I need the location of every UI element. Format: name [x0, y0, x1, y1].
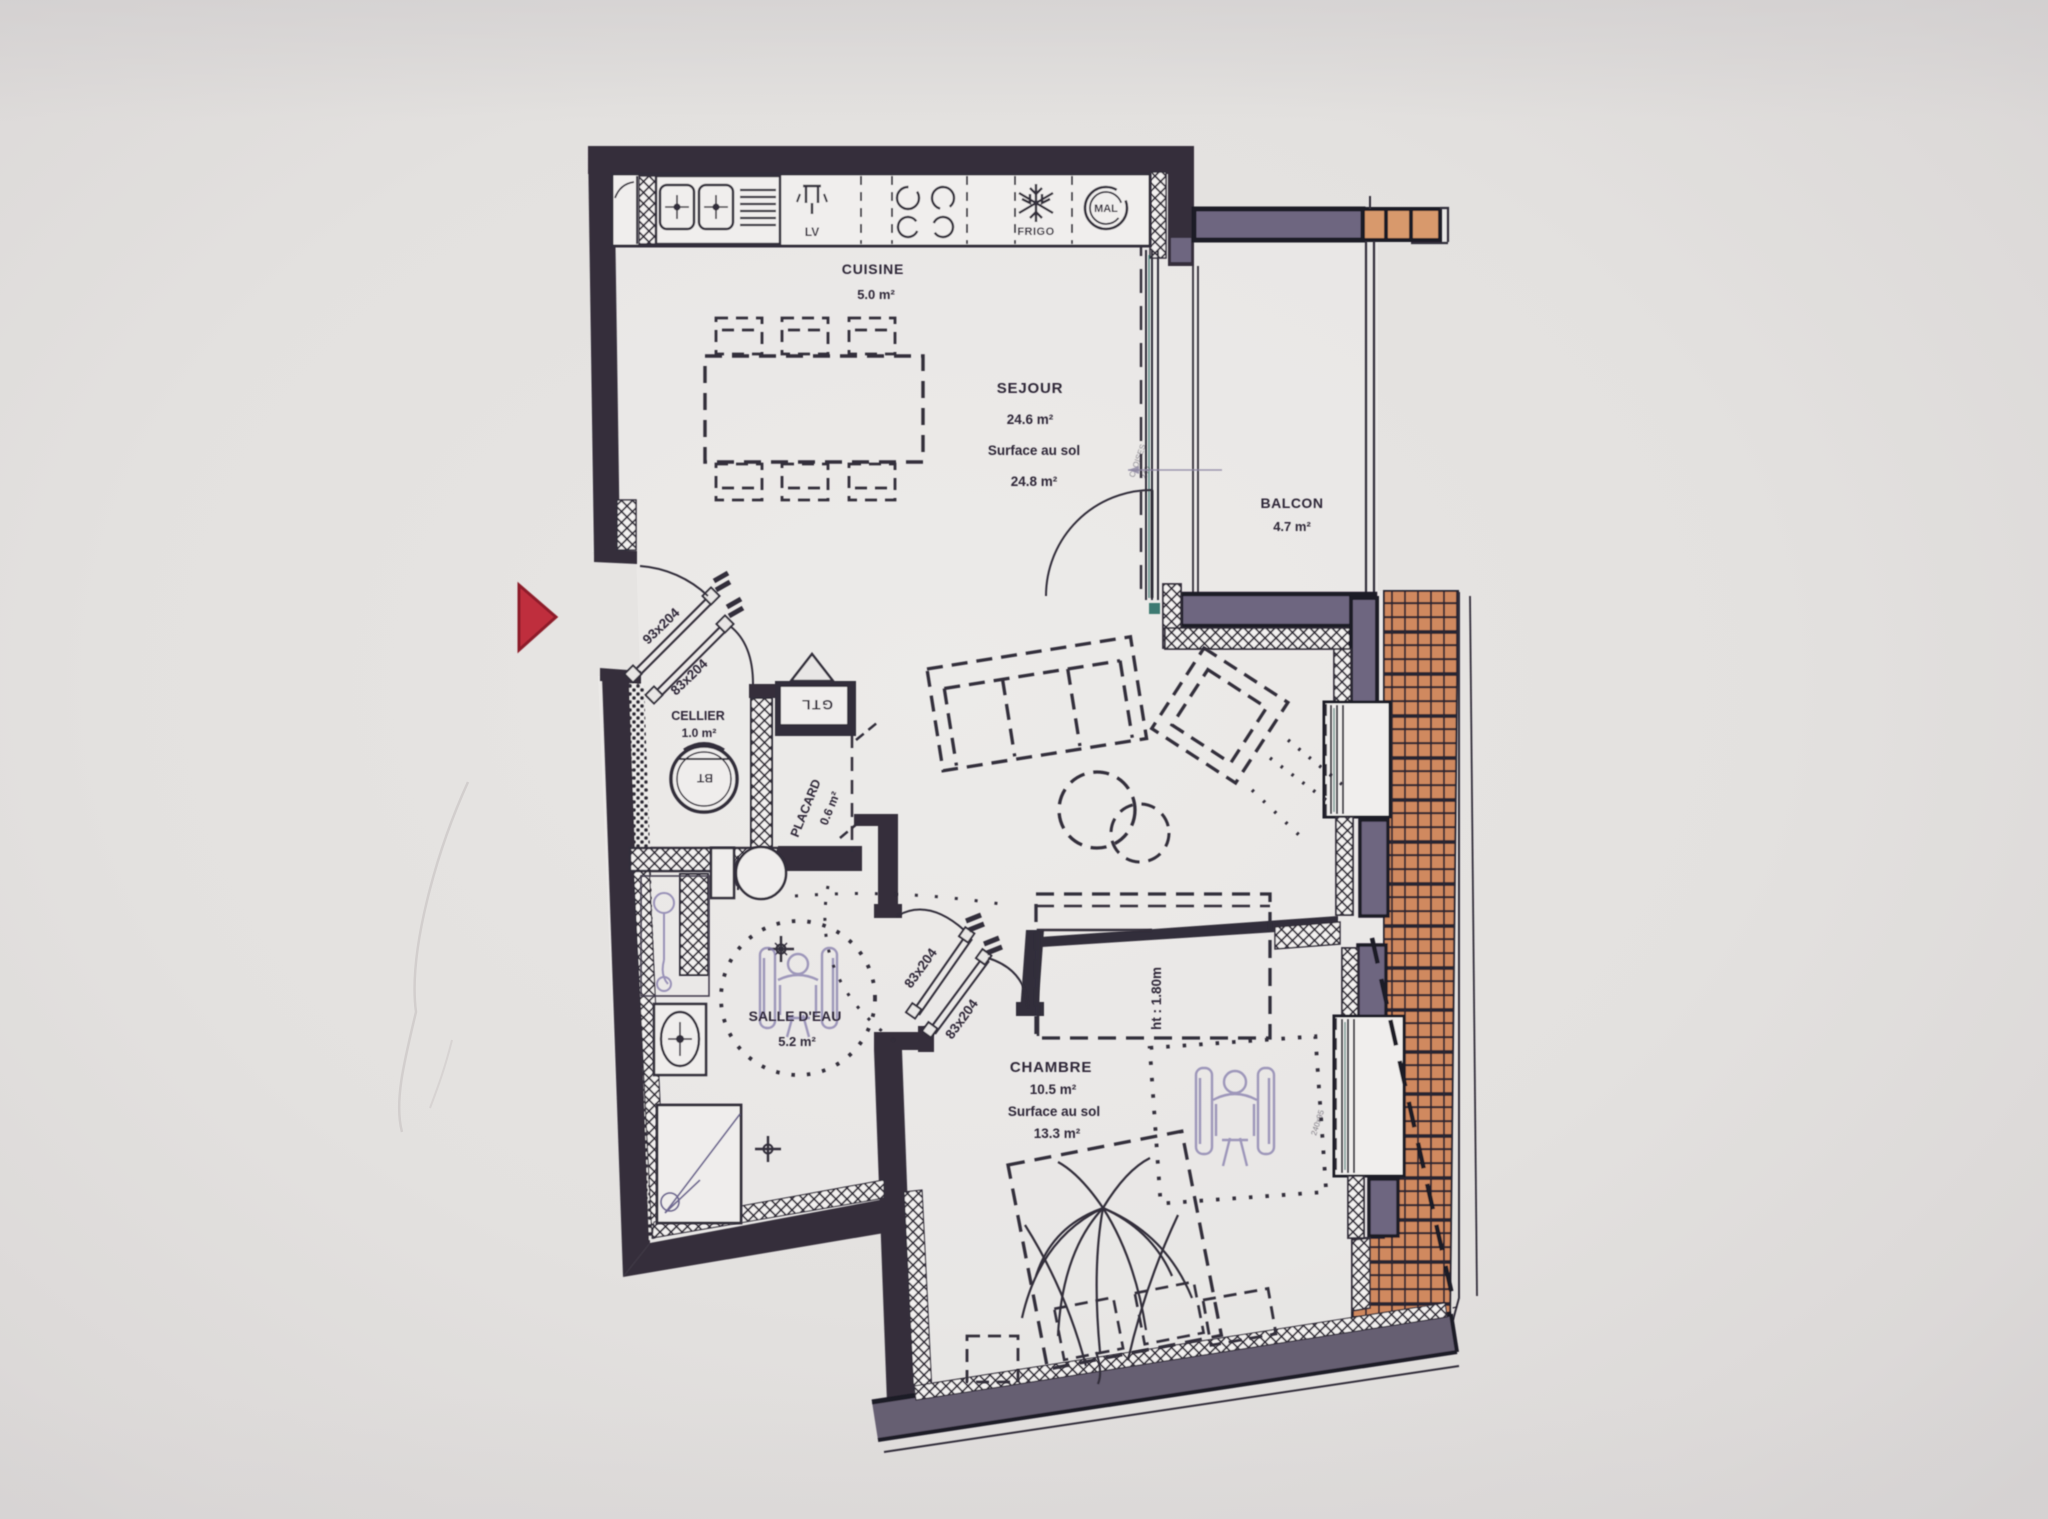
svg-text:24.8 m²: 24.8 m² [1011, 474, 1058, 489]
svg-text:CHAMBRE: CHAMBRE [1010, 1059, 1092, 1076]
svg-text:BT: BT [696, 771, 713, 785]
svg-text:5.0 m²: 5.0 m² [857, 287, 895, 302]
svg-text:Surface au sol: Surface au sol [1008, 1104, 1100, 1119]
svg-text:GTL: GTL [801, 697, 834, 713]
svg-text:5.2 m²: 5.2 m² [778, 1034, 816, 1049]
svg-text:4.7 m²: 4.7 m² [1273, 519, 1311, 534]
svg-text:LV: LV [805, 225, 819, 239]
svg-text:CELLIER: CELLIER [671, 709, 724, 723]
svg-text:CUISINE: CUISINE [842, 261, 904, 277]
svg-text:24.6 m²: 24.6 m² [1007, 412, 1054, 427]
svg-text:MAL: MAL [1094, 203, 1118, 215]
svg-text:BALCON: BALCON [1261, 495, 1324, 511]
svg-text:ht : 1.80m: ht : 1.80m [1149, 967, 1164, 1030]
svg-text:13.3 m²: 13.3 m² [1034, 1126, 1081, 1141]
svg-text:Surface au sol: Surface au sol [988, 443, 1080, 458]
svg-text:SALLE D'EAU: SALLE D'EAU [749, 1008, 842, 1024]
svg-text:10.5 m²: 10.5 m² [1030, 1082, 1077, 1097]
svg-text:1.0 m²: 1.0 m² [682, 726, 717, 740]
svg-text:SEJOUR: SEJOUR [997, 380, 1064, 397]
svg-text:FRIGO: FRIGO [1017, 226, 1054, 238]
